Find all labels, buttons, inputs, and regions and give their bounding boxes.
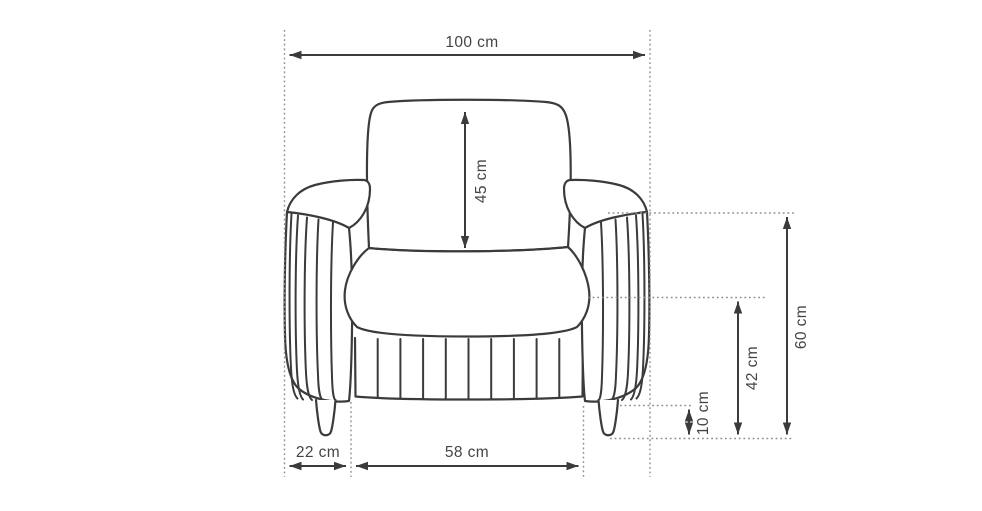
dimension-label-backrest-height: 45 cm [473, 159, 490, 203]
dimension-label-armrest-width: 22 cm [296, 444, 340, 461]
dimension-label-leg-height: 10 cm [695, 391, 712, 435]
backrest-cushion [367, 100, 571, 248]
dimension-label-seat-height: 42 cm [744, 346, 761, 390]
armchair-dimension-diagram: 100 cm 45 cm 22 cm 58 cm 60 cm [0, 0, 982, 511]
dimension-seat-width: 58 cm [356, 406, 584, 477]
dimension-label-overall-width: 100 cm [445, 34, 498, 51]
seat-cushion [345, 247, 590, 337]
armchair-drawing [285, 100, 650, 436]
dimension-label-armrest-height: 60 cm [793, 305, 810, 349]
dimension-label-seat-width: 58 cm [445, 444, 489, 461]
dimension-leg-height: 10 cm [620, 391, 712, 435]
left-leg [316, 400, 336, 435]
right-leg [599, 400, 619, 435]
diagram-canvas: 100 cm 45 cm 22 cm 58 cm 60 cm [0, 0, 982, 511]
